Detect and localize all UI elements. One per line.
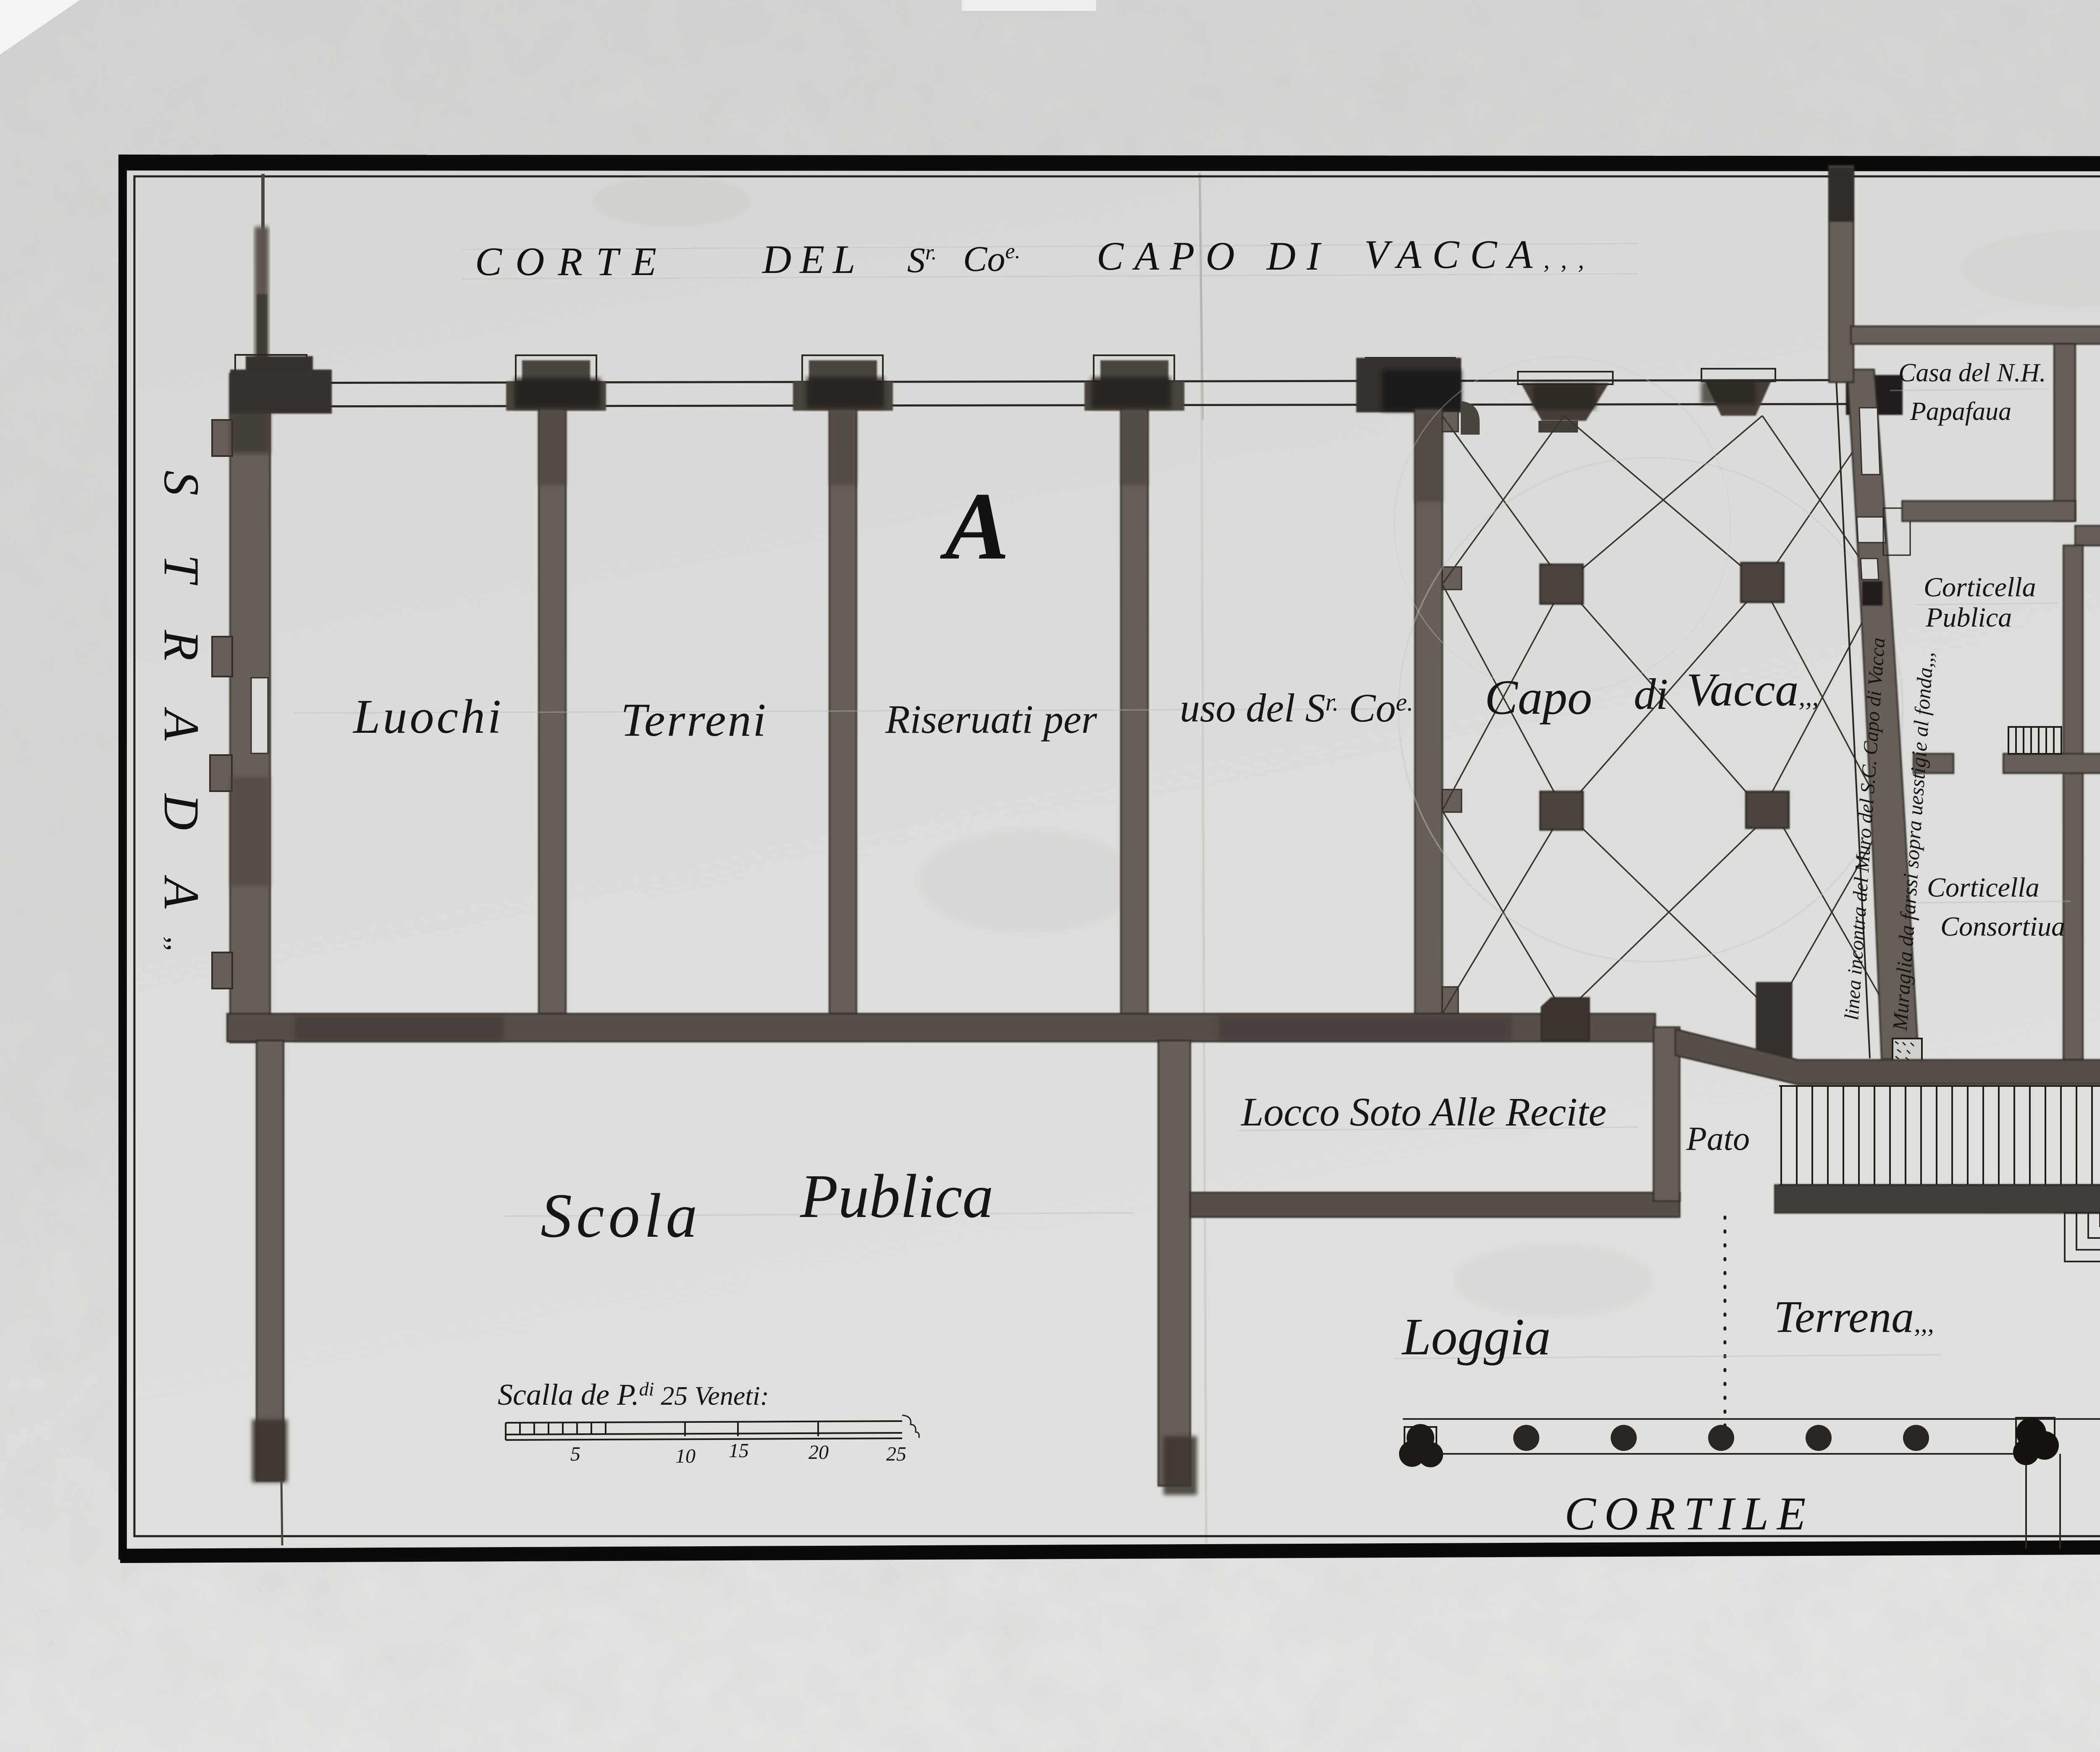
svg-text:Casa del N.H.: Casa del N.H. (1898, 359, 2046, 387)
svg-text:Consortiua: Consortiua (1940, 911, 2065, 942)
svg-text:Scalla de P.di 25 Veneti:: Scalla de P.di 25 Veneti: (498, 1378, 769, 1411)
svg-text:di: di (1634, 669, 1668, 719)
svg-text:A: A (154, 707, 210, 741)
svg-text:T: T (154, 554, 210, 585)
svg-text:,,: ,, (161, 936, 194, 951)
svg-text:Corticella: Corticella (1924, 572, 2036, 603)
svg-text:5: 5 (570, 1443, 580, 1465)
svg-text:Scola: Scola (541, 1181, 701, 1251)
svg-text:10: 10 (675, 1445, 696, 1467)
svg-text:15: 15 (729, 1440, 749, 1462)
svg-text:A: A (940, 472, 1009, 580)
svg-text:D: D (154, 793, 210, 830)
svg-text:Pato: Pato (1686, 1120, 1750, 1157)
svg-text:Papafaua: Papafaua (1910, 397, 2011, 426)
svg-text:Capo: Capo (1485, 670, 1592, 725)
svg-text:Loggia: Loggia (1401, 1308, 1551, 1366)
svg-text:CORTILE: CORTILE (1564, 1488, 1814, 1540)
svg-text:20: 20 (808, 1441, 829, 1463)
svg-text:Locco Soto Alle Recite: Locco Soto Alle Recite (1240, 1089, 1606, 1134)
svg-text:A: A (154, 875, 210, 909)
svg-text:DEL: DEL (761, 237, 864, 282)
svg-text:R: R (154, 629, 210, 661)
svg-text:Luochi: Luochi (352, 690, 504, 744)
svg-text:CORTE: CORTE (475, 239, 670, 284)
svg-text:S: S (154, 470, 210, 496)
svg-text:Publica: Publica (1925, 602, 2012, 633)
svg-text:CAPO DI: CAPO DI (1097, 233, 1331, 278)
svg-text:Publica: Publica (800, 1162, 993, 1231)
svg-text:Corticella: Corticella (1927, 872, 2040, 903)
svg-text:Terrena,,,: Terrena,,, (1774, 1292, 1934, 1342)
svg-text:Terreni: Terreni (621, 694, 768, 746)
svg-text:25: 25 (886, 1443, 906, 1465)
svg-text:Riseruati per: Riseruati per (885, 697, 1097, 742)
svg-text:uso del Sr. Coe.: uso del Sr. Coe. (1180, 685, 1413, 730)
